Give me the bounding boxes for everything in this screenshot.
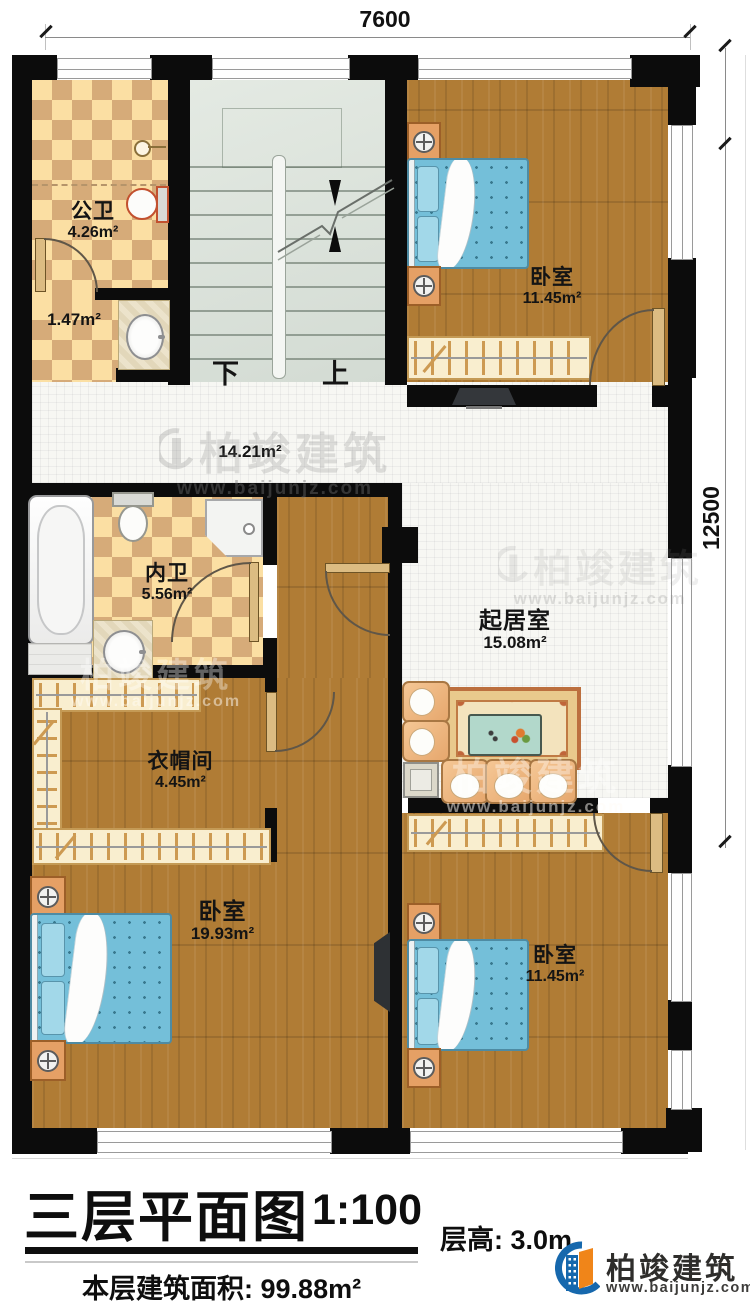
wall-masterbath-right-a [263, 497, 277, 565]
master-bath-label: 内卫 5.56m² [122, 562, 212, 605]
coffee-table-icon [468, 714, 542, 756]
towel-ring-stem [148, 146, 166, 148]
sink-icon [103, 630, 145, 674]
wall-cloakroom-stub-top [265, 668, 277, 692]
sink-icon [126, 314, 164, 360]
wardrobe-hangers-icon [32, 678, 201, 712]
window-bottom-left [97, 1131, 332, 1153]
bathtub-shelf [28, 643, 92, 675]
wall-publicbath-divider [95, 288, 168, 300]
title-rule-thick [25, 1247, 418, 1254]
wall-publicbath-right [168, 55, 190, 385]
wall-right-b [668, 258, 696, 378]
window-right-living [671, 558, 692, 767]
wardrobe-hangers-icon [32, 708, 62, 832]
dimension-right-value: 12500 [698, 450, 725, 550]
window-top-middle [212, 58, 350, 79]
bathtub-icon [28, 495, 94, 645]
shower-curtain-line [32, 184, 166, 186]
pillow [417, 216, 439, 262]
window-bottom-right [410, 1131, 623, 1153]
hallway-area-label: 14.21m² [195, 442, 305, 462]
plan-scale: 1:100 [312, 1186, 422, 1235]
pillow [41, 981, 65, 1035]
public-bath-label: 公卫 4.26m² [48, 200, 138, 243]
pillow [41, 923, 65, 977]
shower-drain-icon [243, 523, 255, 535]
wall-bottom-b [330, 1128, 410, 1154]
lamp-icon [413, 1057, 435, 1079]
nightstand-icon [407, 903, 441, 943]
wall-bottom-a [12, 1128, 97, 1154]
extension-line [12, 1158, 688, 1159]
lamp-icon [37, 886, 59, 908]
dimension-top-value: 7600 [340, 6, 430, 33]
lamp-icon [413, 912, 435, 934]
living-room-label: 起居室 15.08m² [455, 607, 575, 653]
window-top-right [418, 58, 632, 79]
plan-title: 三层平面图 [24, 1172, 309, 1252]
lamp-icon [413, 131, 435, 153]
bath-vestibule-area-label: 1.47m² [30, 310, 118, 330]
wall-sink-niche-bottom [116, 368, 170, 382]
wardrobe-hangers-icon [407, 814, 604, 852]
sofa-icon [485, 759, 533, 804]
wall-top-a [12, 55, 57, 80]
wall-right-e [668, 1000, 692, 1050]
bedroom-bottom-left-label: 卧室 19.93m² [150, 898, 295, 944]
sofa-icon [402, 681, 450, 723]
lamp-icon [413, 275, 435, 297]
dimension-line-top [45, 37, 690, 38]
wall-bottom-c [621, 1128, 688, 1154]
wall-right-d [668, 765, 692, 873]
wall-living-bedroom-br-stub [650, 798, 668, 813]
lamp-icon [37, 1050, 59, 1072]
window-top-left [57, 58, 152, 79]
floor-plan-canvas: 下 上 公卫 4.26m² 1.47m² 内卫 5.56m² 14.21m² 起… [0, 0, 750, 1306]
side-table-icon [403, 762, 439, 798]
pillow [417, 947, 439, 994]
towel-ring-icon [134, 140, 151, 157]
nightstand-icon [407, 1048, 441, 1088]
wall-right-a [668, 87, 696, 125]
wardrobe-hangers-icon [32, 828, 271, 865]
wardrobe-hangers-icon [407, 336, 591, 380]
window-right-bedroom-br-a [671, 873, 692, 1002]
sofa-icon [441, 759, 489, 804]
bedroom-bottom-right-label: 卧室 11.45m² [485, 944, 625, 987]
stair-direction-up-label: 上 [322, 352, 349, 391]
pillow [417, 998, 439, 1045]
title-rule-thin [25, 1261, 418, 1263]
bed-icon [407, 158, 529, 269]
floor-area-label: 本层建筑面积: 99.88m² [82, 1267, 361, 1306]
bedroom-top-right-label: 卧室 11.45m² [482, 266, 622, 309]
extension-line [745, 55, 746, 1150]
wall-top-c [348, 55, 418, 80]
nightstand-icon [30, 876, 66, 917]
wall-spine-pier [382, 527, 418, 563]
pillow [417, 166, 439, 212]
window-right-bedroom-br-b [671, 1050, 692, 1110]
nightstand-icon [30, 1040, 66, 1081]
tv-stand [466, 406, 502, 409]
wall-top-corner [630, 55, 700, 87]
wall-right-c [668, 378, 692, 558]
cloakroom-label: 衣帽间 4.45m² [118, 750, 243, 793]
wall-spine [388, 497, 402, 1128]
stair-arrow-icon [329, 226, 341, 252]
company-logo-icon [552, 1240, 600, 1298]
company-website: www.baijunjz.com [606, 1280, 750, 1296]
nightstand-icon [407, 122, 441, 162]
sofa-icon [529, 759, 577, 804]
window-right-bedroom-tr [671, 125, 693, 260]
stair-arrow-icon [329, 180, 341, 206]
sofa-icon [402, 720, 450, 762]
tv-icon [374, 932, 390, 1012]
dimension-line-right [725, 48, 726, 848]
nightstand-icon [407, 266, 441, 306]
tv-icon [452, 388, 516, 405]
wall-bedroom-tr-bottom-stub [652, 385, 668, 407]
stair-direction-down-label: 下 [212, 352, 239, 391]
